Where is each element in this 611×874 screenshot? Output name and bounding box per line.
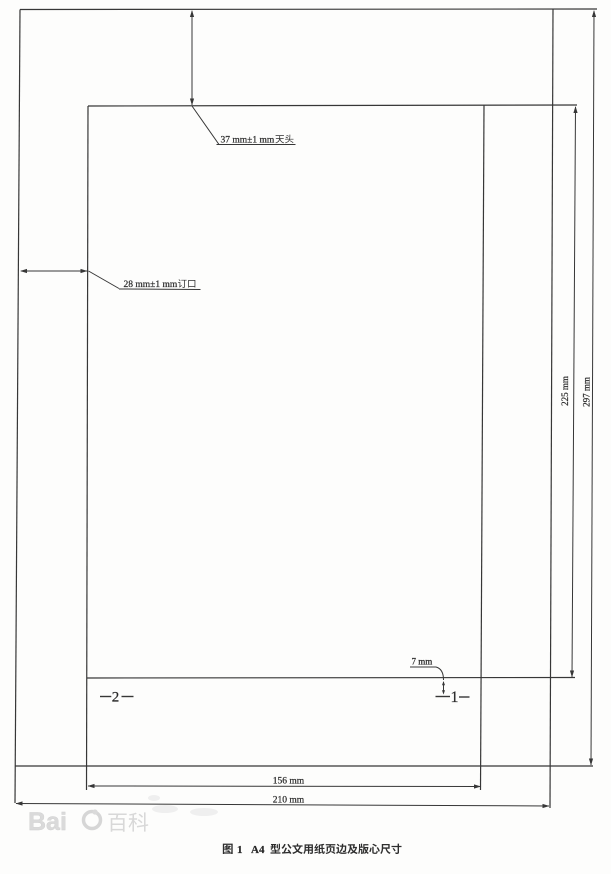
svg-text:1: 1 xyxy=(451,689,459,706)
svg-text:Bai: Bai xyxy=(28,808,67,836)
svg-text:1: 1 xyxy=(237,844,243,856)
svg-text:156 mm: 156 mm xyxy=(273,777,305,787)
svg-text:7 mm: 7 mm xyxy=(412,657,433,667)
svg-text:28 mm±1 mm: 28 mm±1 mm xyxy=(124,280,178,290)
svg-text:297 mm: 297 mm xyxy=(582,377,592,407)
svg-text:A4: A4 xyxy=(251,844,265,856)
svg-text:2: 2 xyxy=(112,690,120,706)
svg-text:225 mm: 225 mm xyxy=(560,376,570,406)
svg-text:37 mm±1 mm: 37 mm±1 mm xyxy=(221,136,275,146)
svg-text:210 mm: 210 mm xyxy=(273,796,305,806)
